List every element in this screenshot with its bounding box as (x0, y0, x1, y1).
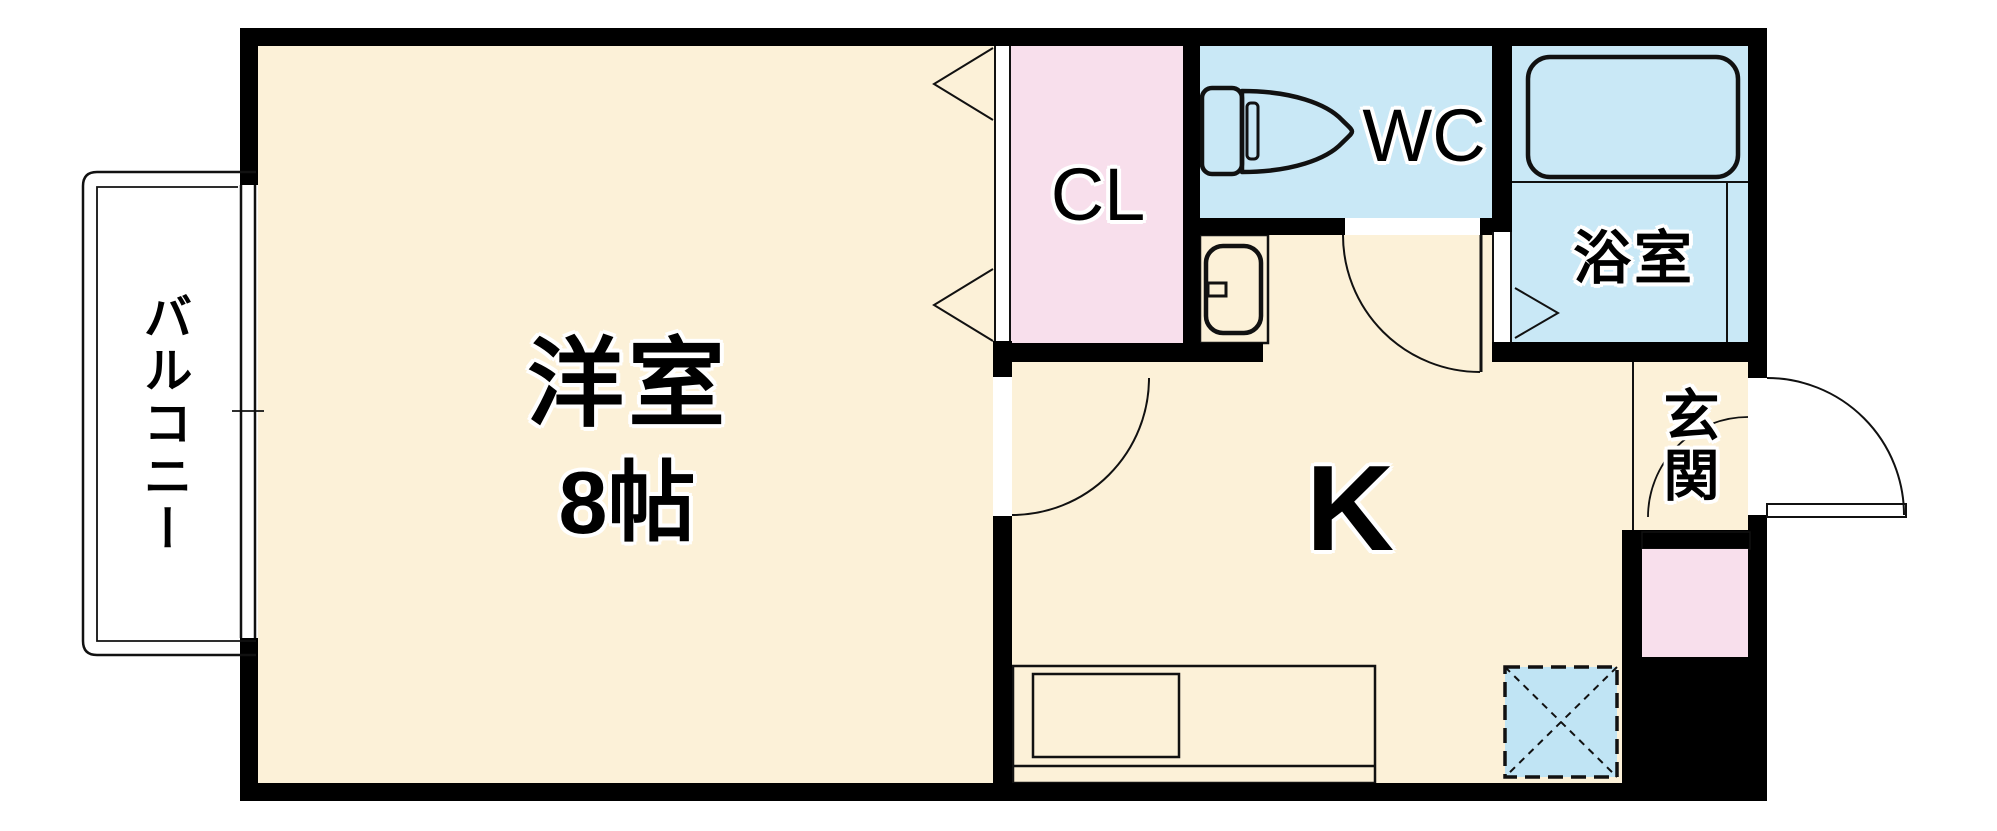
room-label-toilet: WC (1362, 99, 1485, 173)
room-size-western-room: 8帖 (559, 459, 696, 547)
room-label-balcony: バルコニー (139, 292, 188, 557)
room-label-bathroom: 浴室 (1573, 230, 1695, 288)
wall-left-upper (240, 28, 258, 187)
room-label-kitchen: K (1306, 447, 1394, 569)
room-label-closet: CL (1051, 158, 1146, 232)
washer-pan-icon (1505, 667, 1617, 777)
wall-closet-right (1183, 38, 1200, 362)
wall-left-lower (240, 636, 258, 801)
bathroom-floor (1502, 38, 1758, 362)
wall-top (240, 28, 1767, 46)
wall-wc-bottom-left (1183, 218, 1345, 235)
floorplan: 洋室 8帖 K CL WC 浴室 玄関 バルコニー (0, 0, 1997, 831)
wall-west-kitchen-lower (993, 516, 1012, 801)
room-label-western-room: 洋室 (527, 336, 729, 433)
door-arc (1767, 378, 1904, 515)
wall-bath-left (1492, 38, 1512, 232)
wall-under-closet (1004, 343, 1263, 362)
wall-right-upper (1748, 28, 1767, 378)
wall-bath-bottom (1492, 342, 1767, 362)
door-leaf (1767, 504, 1906, 517)
shoe-cabinet (1642, 549, 1748, 657)
room-label-entrance: 玄関 (1659, 386, 1715, 506)
